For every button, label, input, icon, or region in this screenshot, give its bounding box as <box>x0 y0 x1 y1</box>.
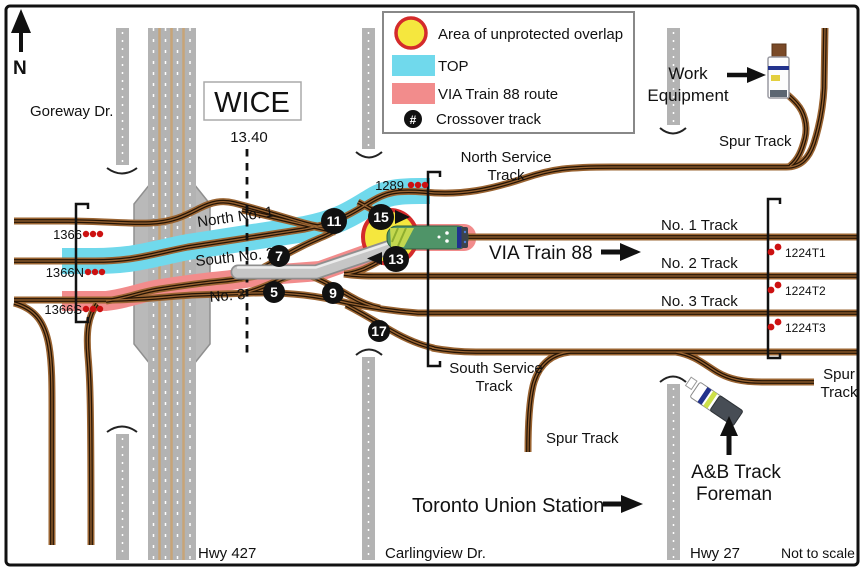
south-service-label-1: South Service <box>449 360 542 377</box>
svg-text:9: 9 <box>329 285 337 301</box>
legend-via-swatch <box>392 83 435 104</box>
spur-right-label-2: Track <box>821 384 858 401</box>
svg-text:5: 5 <box>270 284 278 300</box>
north-service-label-2: Track <box>488 167 525 184</box>
svg-text:TOP: TOP <box>438 58 469 75</box>
svg-text:#: # <box>410 113 417 127</box>
foreman-label-1: A&B Track <box>691 462 781 483</box>
track-diagram: 5 7 9 11 13 15 17 1366 1366N 1366S 1289 … <box>0 0 864 571</box>
svg-text:13: 13 <box>388 251 404 267</box>
svg-text:11: 11 <box>327 213 342 229</box>
svg-text:VIA Train 88 route: VIA Train 88 route <box>438 86 558 103</box>
legend: Area of unprotected overlap TOP VIA Trai… <box>383 12 634 133</box>
svg-text:1366S: 1366S <box>44 302 82 317</box>
crossover-17: 17 <box>368 320 390 342</box>
no2-track-label: No. 2 Track <box>661 255 738 272</box>
svg-text:1366N: 1366N <box>46 265 84 280</box>
goreway-label: Goreway Dr. <box>30 103 113 120</box>
crossover-11: 11 <box>321 208 347 234</box>
north-service-label-1: North Service <box>461 149 552 166</box>
svg-text:1224T2: 1224T2 <box>785 284 826 298</box>
legend-overlap-icon <box>396 18 426 48</box>
svg-text:1224T1: 1224T1 <box>785 246 826 260</box>
crossover-15: 15 <box>368 204 394 230</box>
spur-right-label-1: Spur <box>823 366 855 383</box>
legend-top-swatch <box>392 55 435 76</box>
svg-text:Crossover track: Crossover track <box>436 111 542 128</box>
carlingview-label: Carlingview Dr. <box>385 545 486 562</box>
svg-text:N: N <box>13 58 27 79</box>
hwy27-label: Hwy 27 <box>690 545 740 562</box>
no1-track-label: No. 1 Track <box>661 217 738 234</box>
south-service-label-2: Track <box>476 378 513 395</box>
no3-track-label: No. 3 Track <box>661 293 738 310</box>
svg-text:Area of unprotected overlap: Area of unprotected overlap <box>438 26 623 43</box>
not-to-scale-label: Not to scale <box>781 545 855 561</box>
via-train-icon <box>387 226 468 249</box>
svg-text:1289: 1289 <box>375 178 404 193</box>
spur-top-label: Spur Track <box>719 133 792 150</box>
crossover-13: 13 <box>383 246 409 272</box>
work-equipment-label-1: Work <box>668 64 708 83</box>
hwy427-label: Hwy 427 <box>198 545 256 562</box>
crossover-5: 5 <box>263 281 285 303</box>
station-mileage: 13.40 <box>230 129 268 146</box>
svg-text:7: 7 <box>275 248 283 264</box>
svg-text:1366: 1366 <box>53 227 82 242</box>
union-station-label: Toronto Union Station <box>412 495 604 517</box>
crossover-9: 9 <box>322 282 344 304</box>
work-equipment-label-2: Equipment <box>647 86 729 105</box>
foreman-label-2: Foreman <box>696 484 772 505</box>
via-train-label: VIA Train 88 <box>489 243 593 264</box>
no3-left-label: No. 3 <box>209 286 246 306</box>
svg-text:1224T3: 1224T3 <box>785 321 826 335</box>
svg-text:15: 15 <box>373 209 389 225</box>
svg-text:17: 17 <box>371 323 387 339</box>
spur-bottom-label: Spur Track <box>546 430 619 447</box>
station-name: WICE <box>214 87 290 119</box>
